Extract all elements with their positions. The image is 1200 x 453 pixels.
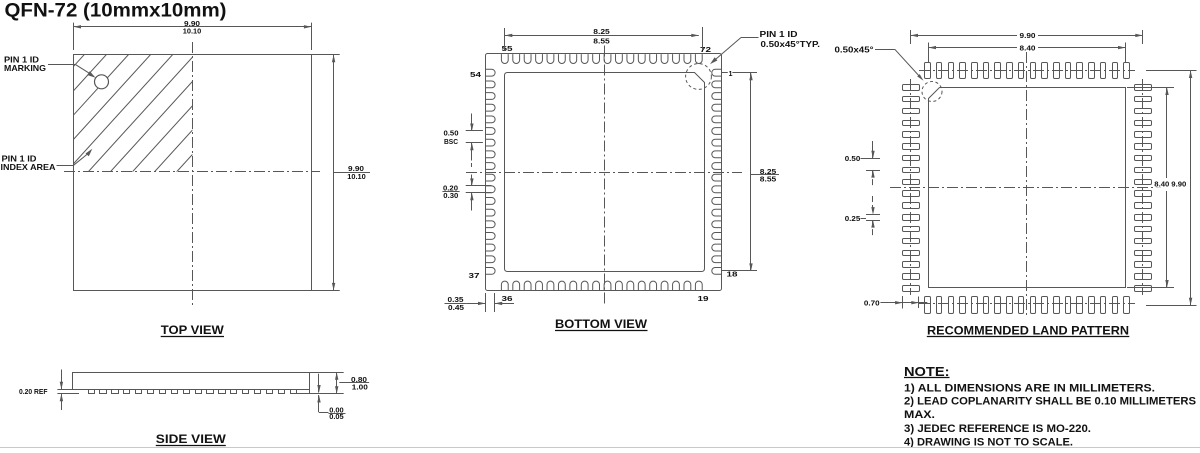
svg-text:8.40: 8.40 [1154, 179, 1169, 188]
svg-text:SIDE VIEW: SIDE VIEW [156, 434, 226, 446]
svg-text:TOP VIEW: TOP VIEW [161, 325, 224, 337]
svg-text:NOTE:: NOTE: [904, 364, 950, 379]
svg-text:INDEX AREA: INDEX AREA [1, 163, 56, 172]
svg-text:MAX.: MAX. [904, 409, 935, 421]
svg-text:9.90: 9.90 [1020, 31, 1036, 40]
svg-text:0.25: 0.25 [845, 214, 861, 223]
svg-text:8.25: 8.25 [593, 27, 610, 36]
svg-text:10.10: 10.10 [183, 26, 202, 35]
svg-text:1) ALL DIMENSIONS ARE IN MILLI: 1) ALL DIMENSIONS ARE IN MILLIMETERS. [904, 382, 1155, 394]
svg-text:0.20 REF: 0.20 REF [19, 389, 48, 396]
svg-text:72: 72 [700, 45, 711, 54]
svg-text:BSC: BSC [444, 137, 458, 146]
svg-text:MARKING: MARKING [4, 64, 46, 73]
svg-text:1.00: 1.00 [352, 382, 368, 391]
svg-text:BOTTOM VIEW: BOTTOM VIEW [555, 319, 647, 331]
svg-text:3) JEDEC REFERENCE IS MO-220.: 3) JEDEC REFERENCE IS MO-220. [904, 423, 1091, 435]
svg-text:10.10: 10.10 [347, 172, 366, 181]
svg-text:0.45: 0.45 [448, 303, 465, 312]
svg-text:0.70: 0.70 [864, 298, 880, 307]
svg-text:4) DRAWING IS NOT TO SCALE.: 4) DRAWING IS NOT TO SCALE. [904, 436, 1073, 448]
svg-text:37: 37 [469, 271, 480, 280]
svg-text:55: 55 [502, 44, 514, 53]
svg-text:0.05: 0.05 [329, 412, 344, 421]
svg-text:0.50x45°: 0.50x45° [835, 44, 875, 54]
svg-text:9.90: 9.90 [1171, 179, 1186, 188]
svg-text:0.50x45°TYP.: 0.50x45°TYP. [761, 39, 821, 49]
svg-text:8.55: 8.55 [760, 175, 777, 184]
svg-text:RECOMMENDED LAND PATTERN: RECOMMENDED LAND PATTERN [927, 326, 1129, 338]
svg-text:0.30: 0.30 [443, 191, 458, 200]
svg-text:PIN 1 ID: PIN 1 ID [760, 29, 798, 39]
svg-text:2) LEAD COPLANARITY SHALL BE 0: 2) LEAD COPLANARITY SHALL BE 0.10 MILLIM… [904, 396, 1196, 408]
svg-text:8.55: 8.55 [593, 37, 610, 46]
svg-text:54: 54 [470, 70, 482, 79]
svg-text:0.50: 0.50 [845, 154, 861, 163]
svg-text:19: 19 [698, 294, 709, 303]
svg-text:8.40: 8.40 [1020, 43, 1036, 52]
svg-text:36: 36 [502, 294, 513, 303]
